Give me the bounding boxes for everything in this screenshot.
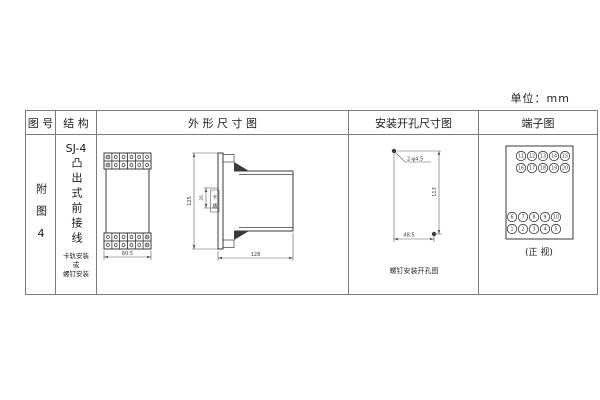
side-bottom-wedge: [234, 231, 249, 240]
terminal-hole-icon: [114, 164, 117, 167]
header-outline-dimensions: 外 形 尺 寸 图: [97, 111, 349, 135]
model-label: SJ-4: [66, 142, 87, 155]
terminal-hole-icon: [146, 156, 149, 159]
figure-no-label: 附图4: [33, 183, 49, 294]
header-terminal-diagram: 端子图: [479, 111, 597, 135]
dim-vertical-spacing: 113: [432, 187, 438, 197]
slot-label-char2: 槽: [212, 203, 217, 210]
front-view: 60.5: [104, 153, 151, 260]
terminal-number: 9: [543, 215, 546, 221]
side-view: 125 35 卡 槽: [187, 153, 293, 261]
spec-table: 图 号 结 构 外 形 尺 寸 图 安装开孔尺寸图 端子图 附图4 SJ-4 凸…: [25, 110, 598, 295]
units-label: 单位：mm: [470, 90, 570, 106]
outline-drawing-cell: 60.5 125: [97, 135, 349, 294]
hole-spec-label: 2-φ4.5: [407, 157, 423, 163]
terminal-cell: [128, 161, 136, 169]
dim-side-height: 125: [187, 196, 193, 206]
terminal-number: 7: [521, 215, 524, 221]
terminal-hole-icon: [122, 236, 125, 239]
terminal-hole-icon: [138, 236, 141, 239]
terminal-cell: [120, 241, 128, 249]
terminal-number: 19: [551, 166, 557, 172]
dim-slot-height: 35: [199, 195, 205, 201]
terminal-cell: [135, 153, 143, 161]
terminal-hole-icon: [114, 244, 117, 247]
terminal-number: 11: [518, 154, 524, 160]
terminal-cell: [128, 241, 136, 249]
terminal-number: 5: [554, 227, 557, 233]
terminal-cell: [120, 233, 128, 241]
mounting-note: 卡轨安装 或 螺钉安装: [63, 252, 89, 279]
terminal-hole-icon: [106, 244, 109, 247]
terminal-number: 12: [529, 154, 535, 160]
terminal-number: 18: [540, 166, 546, 172]
mounting-note-line3: 螺钉安装: [63, 270, 89, 279]
terminal-number: 15: [562, 154, 568, 160]
terminal-number: 2: [521, 227, 524, 233]
slot-label-char1: 卡: [212, 194, 217, 201]
terminal-hole-icon: [138, 156, 141, 159]
structure-cell: SJ-4 凸出式前接线 卡轨安装 或 螺钉安装: [56, 135, 97, 294]
terminal-number: 13: [540, 154, 546, 160]
dim-front-width: 60.5: [122, 251, 133, 257]
terminal-hole-icon: [114, 156, 117, 159]
terminal-hole-icon: [146, 164, 149, 167]
datasheet-page: 单位：mm 图 号 结 构 外 形 尺 寸 图 安装开孔尺寸图 端子图 附图4 …: [0, 0, 600, 400]
mounting-note-line1: 卡轨安装: [63, 252, 89, 261]
side-bottom-tab: [223, 240, 234, 248]
terminal-hole-icon: [130, 244, 133, 247]
terminal-cell: [143, 153, 151, 161]
terminal-number: 4: [543, 227, 546, 233]
terminal-cell: [143, 161, 151, 169]
terminal-cell: [104, 233, 112, 241]
terminal-number: 20: [562, 166, 568, 172]
terminal-number: 17: [529, 166, 535, 172]
front-top-terminal-cells: [104, 153, 151, 169]
dim-side-depth: 128: [251, 252, 261, 258]
header-figure-no: 图 号: [26, 111, 56, 135]
mounting-note-line2: 或: [63, 261, 89, 270]
terminal-hole-icon: [122, 156, 125, 159]
terminal-hole-icon: [114, 236, 117, 239]
side-top-tab: [223, 155, 234, 163]
terminal-cell: [112, 161, 120, 169]
terminal-number: 1: [510, 227, 513, 233]
outline-drawing: 60.5 125: [97, 135, 349, 294]
mounting-drawing: 2-φ4.5 113 48.5 螺钉安装开孔图: [349, 135, 479, 294]
terminal-cell: [112, 241, 120, 249]
terminal-hole-icon: [122, 164, 125, 167]
terminal-hole-icon: [138, 164, 141, 167]
terminal-cell: [120, 153, 128, 161]
header-structure: 结 构: [56, 111, 97, 135]
terminal-cell: [112, 153, 120, 161]
terminal-cell: [135, 241, 143, 249]
terminal-number: 14: [551, 154, 557, 160]
terminal-hole-icon: [106, 236, 109, 239]
front-body: [106, 169, 149, 233]
terminal-hole-icon: [130, 156, 133, 159]
mounting-caption: 螺钉安装开孔图: [390, 266, 439, 275]
terminal-caption: (正 视): [525, 246, 553, 258]
terminal-cell: [120, 161, 128, 169]
terminal-number: 10: [553, 215, 559, 221]
figure-no-cell: 附图4: [26, 135, 56, 294]
terminal-hole-icon: [122, 244, 125, 247]
mounting-drawing-cell: 2-φ4.5 113 48.5 螺钉安装开孔图: [349, 135, 479, 294]
terminal-hole-icon: [130, 164, 133, 167]
terminal-number: 8: [532, 215, 535, 221]
terminal-drawing: 1112131415161718192067891012345 (正 视): [479, 135, 597, 294]
terminal-cell: [128, 233, 136, 241]
terminal-number: 6: [510, 215, 513, 221]
terminal-cell: [128, 153, 136, 161]
front-bottom-terminal-cells: [104, 233, 151, 249]
terminal-circles: 1112131415161718192067891012345: [507, 151, 569, 233]
structure-type-label: 凸出式前接线: [68, 157, 84, 247]
header-mounting-holes: 安装开孔尺寸图: [349, 111, 479, 135]
terminal-cell: [135, 233, 143, 241]
terminal-cell: [104, 241, 112, 249]
dim-horizontal-spacing: 48.5: [403, 233, 414, 239]
terminal-hole-icon: [130, 236, 133, 239]
terminal-number: 16: [518, 166, 524, 172]
terminal-number: 3: [532, 227, 535, 233]
terminal-cell: [135, 161, 143, 169]
terminal-diagram-cell: 1112131415161718192067891012345 (正 视): [479, 135, 597, 294]
terminal-cell: [112, 233, 120, 241]
side-top-wedge: [234, 162, 249, 171]
terminal-hole-icon: [138, 244, 141, 247]
